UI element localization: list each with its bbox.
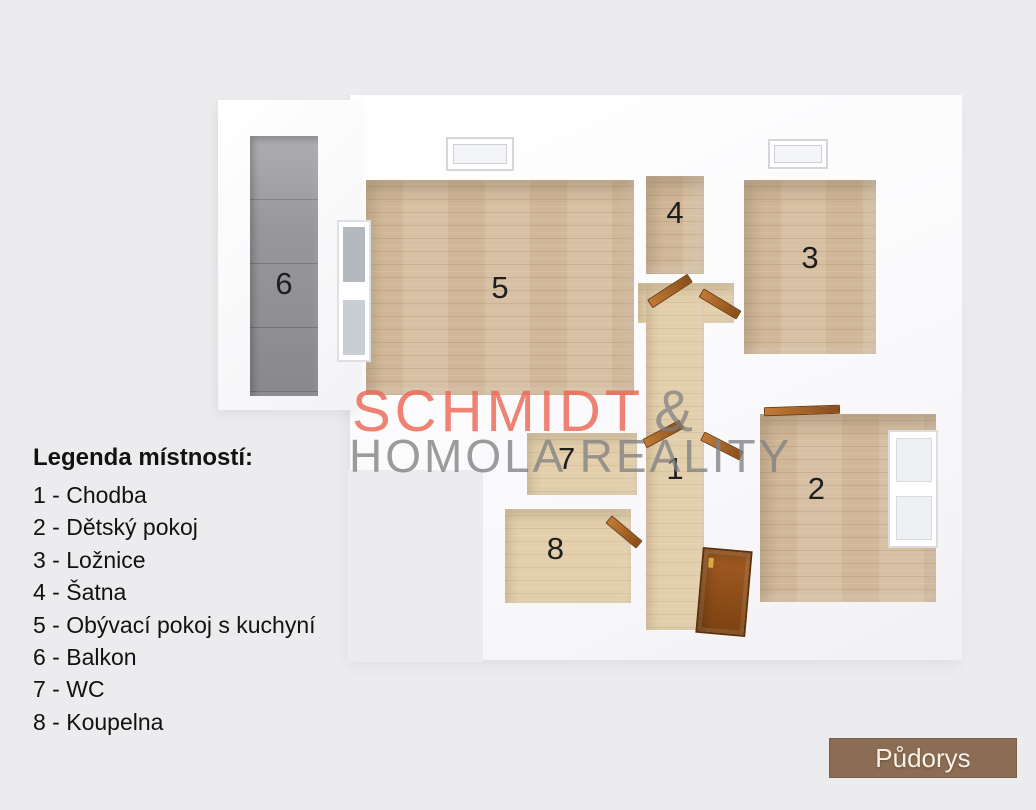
plan-bottom-left-cutout — [348, 470, 483, 662]
balcony-door-window-icon — [337, 220, 371, 362]
legend-item-5: 5 - Obývací pokoj s kuchyní — [33, 609, 316, 641]
childrens-room-window-icon — [888, 430, 938, 548]
room-legend: Legenda místností: 1 - Chodba 2 - Dětský… — [33, 444, 316, 738]
room-number-8: 8 — [547, 531, 564, 567]
room-number-2: 2 — [808, 471, 825, 507]
watermark-line2: HOMOLA REALITY — [349, 429, 792, 483]
floorplan-render: 6 5 4 3 1 2 7 8 SCHMIDT& HOMOLA REALITY … — [0, 0, 1036, 810]
legend-item-7: 7 - WC — [33, 673, 316, 705]
room-balcony-floor: 6 — [250, 136, 318, 396]
legend-title: Legenda místností: — [33, 444, 316, 472]
room-living-kitchen-floor: 5 — [366, 180, 634, 395]
room-wardrobe-floor: 4 — [646, 176, 704, 274]
room-number-3: 3 — [801, 240, 818, 276]
legend-item-1: 1 - Chodba — [33, 479, 316, 511]
legend-item-3: 3 - Ložnice — [33, 544, 316, 576]
legend-item-2: 2 - Dětský pokoj — [33, 511, 316, 543]
legend-item-6: 6 - Balkon — [33, 641, 316, 673]
room-number-4: 4 — [666, 195, 683, 231]
room-bedroom-floor: 3 — [744, 180, 876, 354]
room-number-6: 6 — [275, 266, 292, 302]
room-number-5: 5 — [491, 270, 508, 306]
floorplan-badge: Půdorys — [829, 738, 1017, 778]
bedroom-window-icon — [768, 139, 828, 169]
legend-item-4: 4 - Šatna — [33, 576, 316, 608]
front-door-icon — [695, 547, 752, 637]
legend-item-8: 8 - Koupelna — [33, 706, 316, 738]
living-room-window-icon — [446, 137, 514, 171]
